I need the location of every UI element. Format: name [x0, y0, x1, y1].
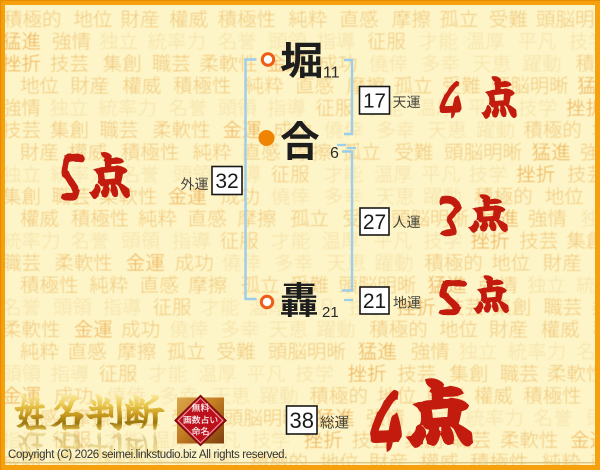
svg-text:6: 6: [330, 145, 339, 162]
svg-text:Copyright (C) 2026 seimei.link: Copyright (C) 2026 seimei.linkstudio.biz…: [8, 449, 287, 461]
svg-text:38: 38: [290, 408, 314, 433]
svg-text:32: 32: [215, 170, 238, 193]
svg-text:21: 21: [363, 290, 386, 313]
svg-text:21: 21: [322, 304, 339, 321]
svg-text:17: 17: [363, 90, 386, 113]
svg-text:27: 27: [363, 211, 386, 234]
svg-text:11: 11: [323, 65, 340, 82]
